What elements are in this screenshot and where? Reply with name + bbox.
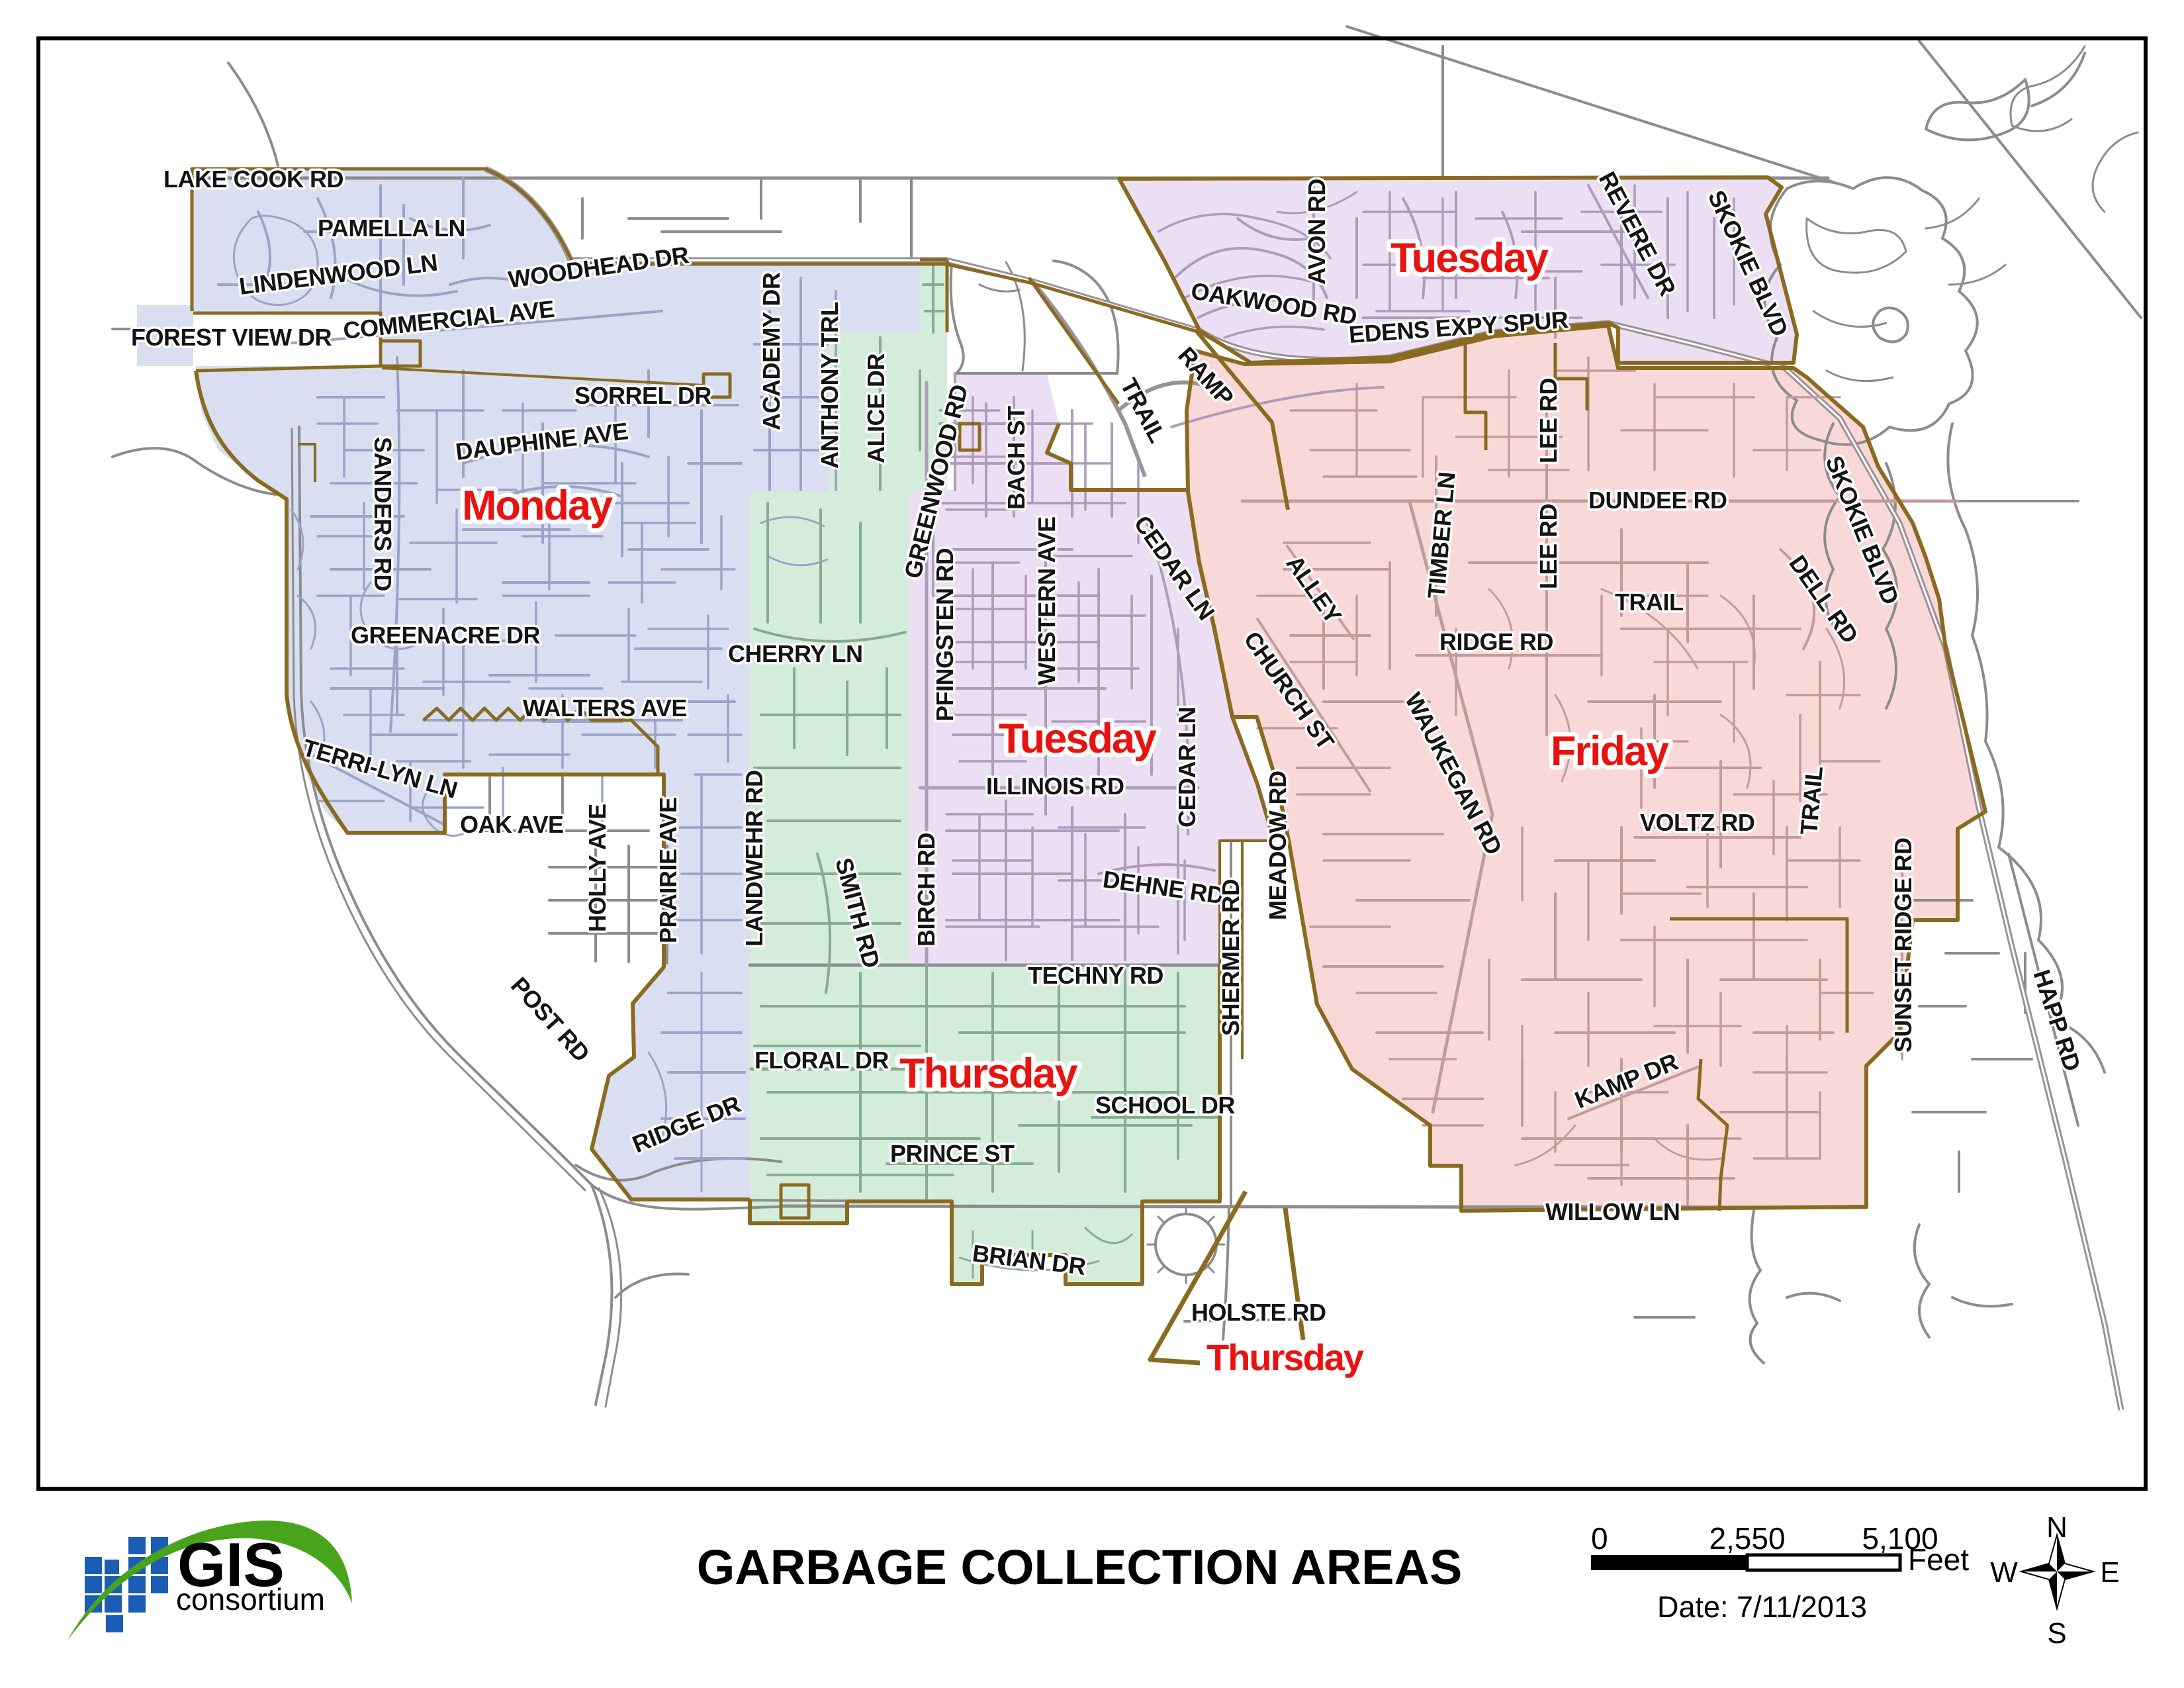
svg-text:WESTERN AVE: WESTERN AVE <box>1033 516 1060 685</box>
svg-text:ALICE DR: ALICE DR <box>862 353 889 464</box>
svg-text:Friday: Friday <box>1551 728 1669 774</box>
svg-text:PFINGSTEN RD: PFINGSTEN RD <box>931 548 958 722</box>
svg-text:CHERRY LN: CHERRY LN <box>728 640 863 667</box>
svg-text:TECHNY RD: TECHNY RD <box>1028 962 1163 989</box>
svg-text:GARBAGE COLLECTION AREAS: GARBAGE COLLECTION AREAS <box>697 1540 1463 1595</box>
svg-text:DUNDEE RD: DUNDEE RD <box>1588 487 1727 514</box>
svg-text:BACH ST: BACH ST <box>1003 406 1030 510</box>
svg-text:SORREL DR: SORREL DR <box>574 382 711 409</box>
svg-text:E: E <box>2100 1556 2119 1589</box>
svg-text:PRINCE ST: PRINCE ST <box>890 1140 1015 1167</box>
svg-text:PRAIRIE AVE: PRAIRIE AVE <box>655 797 682 943</box>
svg-text:PAMELLA LN: PAMELLA LN <box>318 214 465 242</box>
svg-text:AVON RD: AVON RD <box>1303 179 1330 285</box>
svg-text:consortium: consortium <box>176 1582 325 1617</box>
svg-text:Monday: Monday <box>462 483 613 529</box>
svg-text:W: W <box>1990 1556 2018 1589</box>
svg-text:Tuesday: Tuesday <box>1390 235 1549 281</box>
svg-text:CEDAR LN: CEDAR LN <box>1173 707 1201 827</box>
svg-text:FOREST VIEW DR: FOREST VIEW DR <box>131 324 332 351</box>
svg-text:WILLOW LN: WILLOW LN <box>1545 1198 1680 1225</box>
svg-text:Thursday: Thursday <box>1206 1336 1364 1378</box>
svg-text:ILLINOIS RD: ILLINOIS RD <box>986 773 1124 800</box>
svg-text:0: 0 <box>1591 1521 1608 1556</box>
svg-text:SCHOOL DR: SCHOOL DR <box>1095 1092 1235 1119</box>
svg-text:ANTHONY TRL: ANTHONY TRL <box>816 302 843 469</box>
svg-text:LEE RD: LEE RD <box>1535 378 1562 463</box>
svg-text:MEADOW RD: MEADOW RD <box>1264 771 1291 920</box>
svg-text:Feet: Feet <box>1908 1542 1969 1577</box>
svg-text:LAKE COOK RD: LAKE COOK RD <box>163 165 343 193</box>
svg-text:FLORAL DR: FLORAL DR <box>754 1047 889 1074</box>
svg-text:ACADEMY DR: ACADEMY DR <box>758 272 785 430</box>
svg-text:HOLSTE RD: HOLSTE RD <box>1191 1299 1326 1326</box>
svg-text:2,550: 2,550 <box>1709 1521 1785 1556</box>
svg-text:Date: 7/11/2013: Date: 7/11/2013 <box>1657 1590 1867 1624</box>
svg-text:GREENACRE DR: GREENACRE DR <box>351 622 541 649</box>
svg-text:S: S <box>2047 1617 2066 1650</box>
svg-text:Tuesday: Tuesday <box>999 716 1157 762</box>
svg-text:SHERMER RD: SHERMER RD <box>1217 879 1244 1036</box>
svg-text:SANDERS RD: SANDERS RD <box>369 437 396 591</box>
svg-text:LEE RD: LEE RD <box>1535 504 1562 589</box>
svg-text:OAK AVE: OAK AVE <box>460 811 564 838</box>
svg-text:LANDWEHR RD: LANDWEHR RD <box>741 771 768 947</box>
svg-text:VOLTZ RD: VOLTZ RD <box>1640 809 1754 836</box>
svg-text:WALTERS AVE: WALTERS AVE <box>523 694 687 722</box>
svg-text:N: N <box>2046 1511 2068 1544</box>
svg-text:BIRCH RD: BIRCH RD <box>913 833 940 947</box>
svg-text:Thursday: Thursday <box>899 1051 1078 1097</box>
svg-text:HOLLY AVE: HOLLY AVE <box>584 804 611 932</box>
svg-text:SUNSET RIDGE RD: SUNSET RIDGE RD <box>1889 837 1917 1053</box>
svg-text:TRAIL: TRAIL <box>1615 588 1683 616</box>
svg-text:RIDGE RD: RIDGE RD <box>1439 628 1553 655</box>
